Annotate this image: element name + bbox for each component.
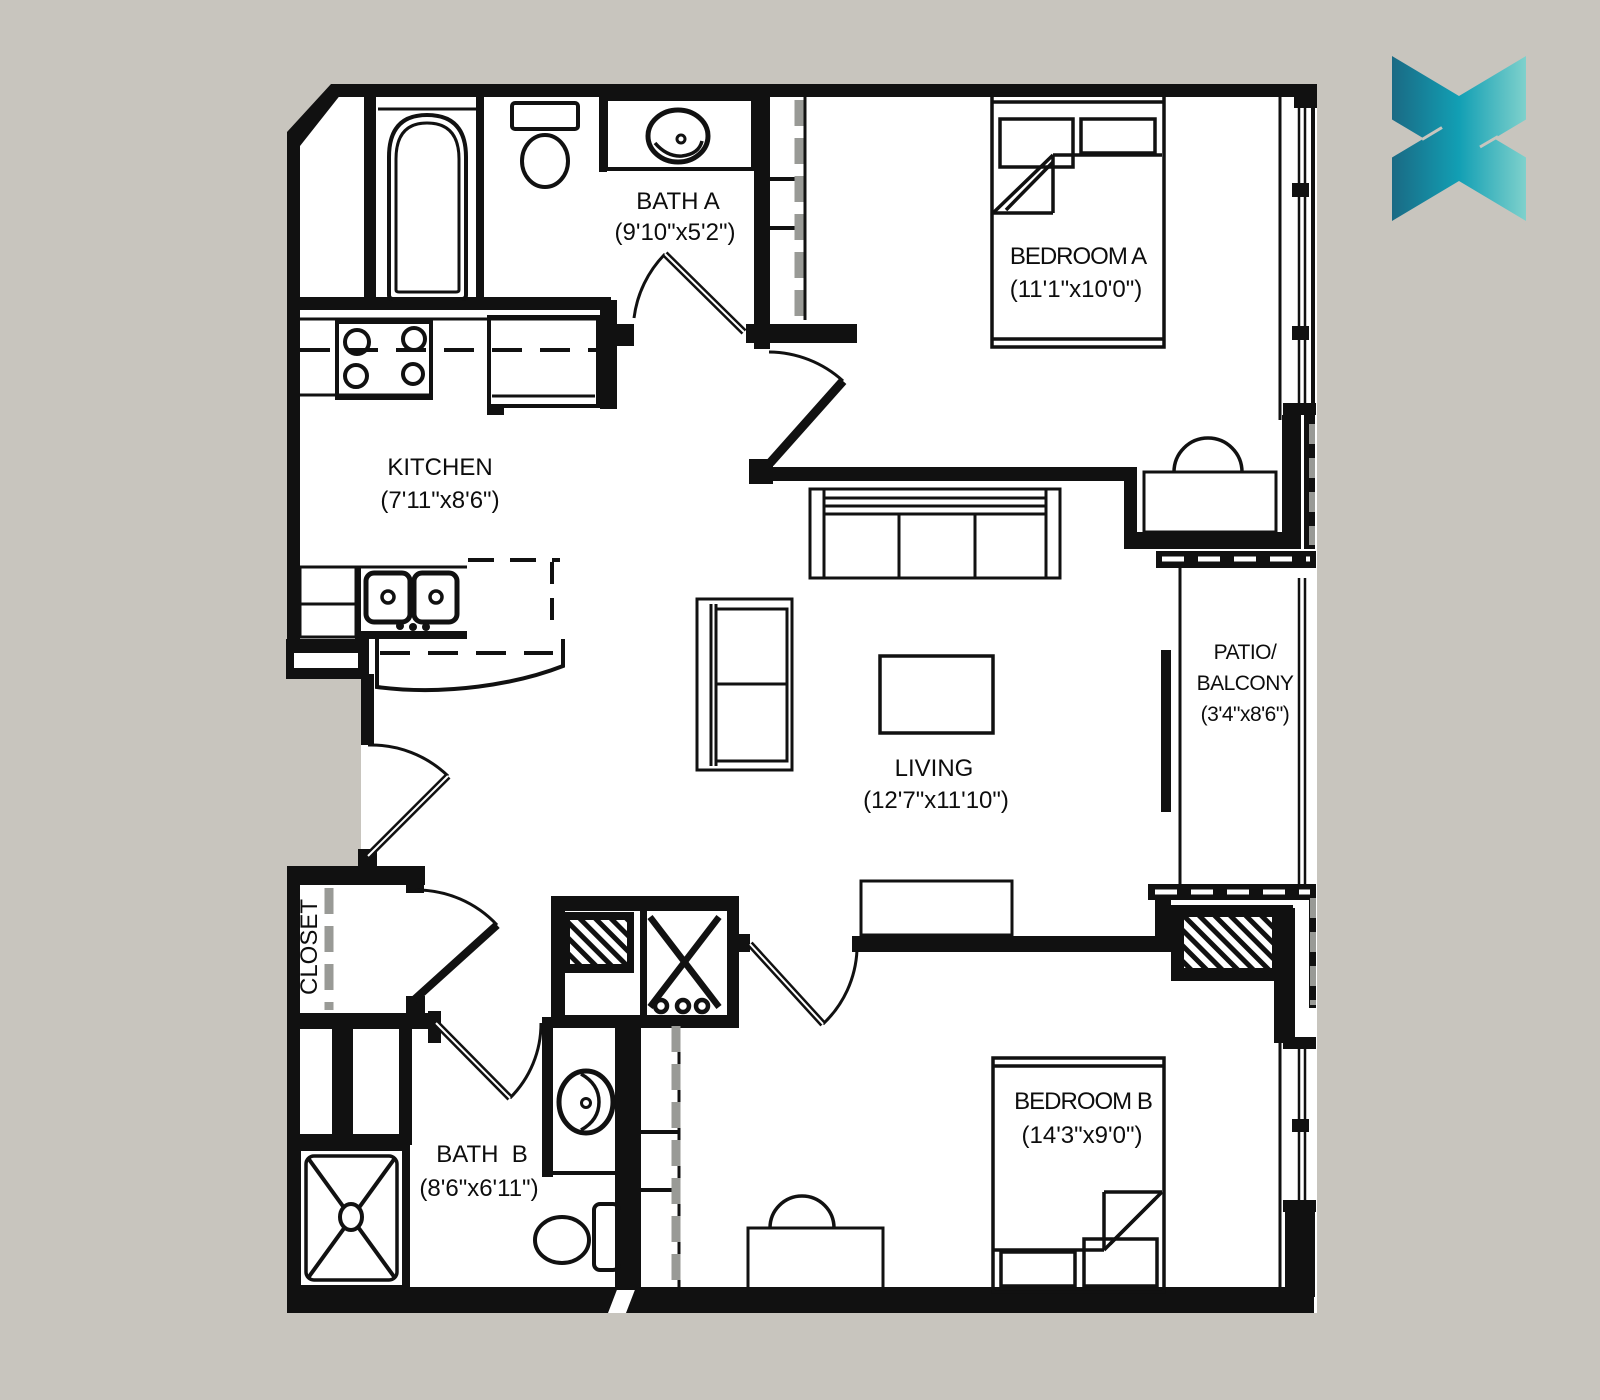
svg-text:LIVING: LIVING [895,755,974,782]
svg-text:(8'6"x6'11"): (8'6"x6'11") [419,1175,538,1202]
svg-text:PATIO/: PATIO/ [1214,641,1277,664]
svg-text:(14'3"x9'0"): (14'3"x9'0") [1022,1122,1143,1149]
svg-text:BEDROOM A: BEDROOM A [1010,243,1147,270]
svg-text:(12'7"x11'10"): (12'7"x11'10") [863,787,1009,814]
svg-text:BEDROOM B: BEDROOM B [1014,1088,1152,1115]
svg-text:(9'10"x5'2"): (9'10"x5'2") [615,219,736,246]
svg-text:BATH B: BATH B [436,1141,528,1168]
svg-text:(7'11"x8'6"): (7'11"x8'6") [380,487,499,514]
svg-text:BATH A: BATH A [636,188,720,215]
svg-text:KITCHEN: KITCHEN [387,454,492,481]
svg-text:BALCONY: BALCONY [1197,672,1294,695]
svg-text:(3'4"x8'6"): (3'4"x8'6") [1201,703,1290,726]
svg-text:CLOSET: CLOSET [296,899,323,995]
svg-text:(11'1"x10'0"): (11'1"x10'0") [1010,276,1143,303]
